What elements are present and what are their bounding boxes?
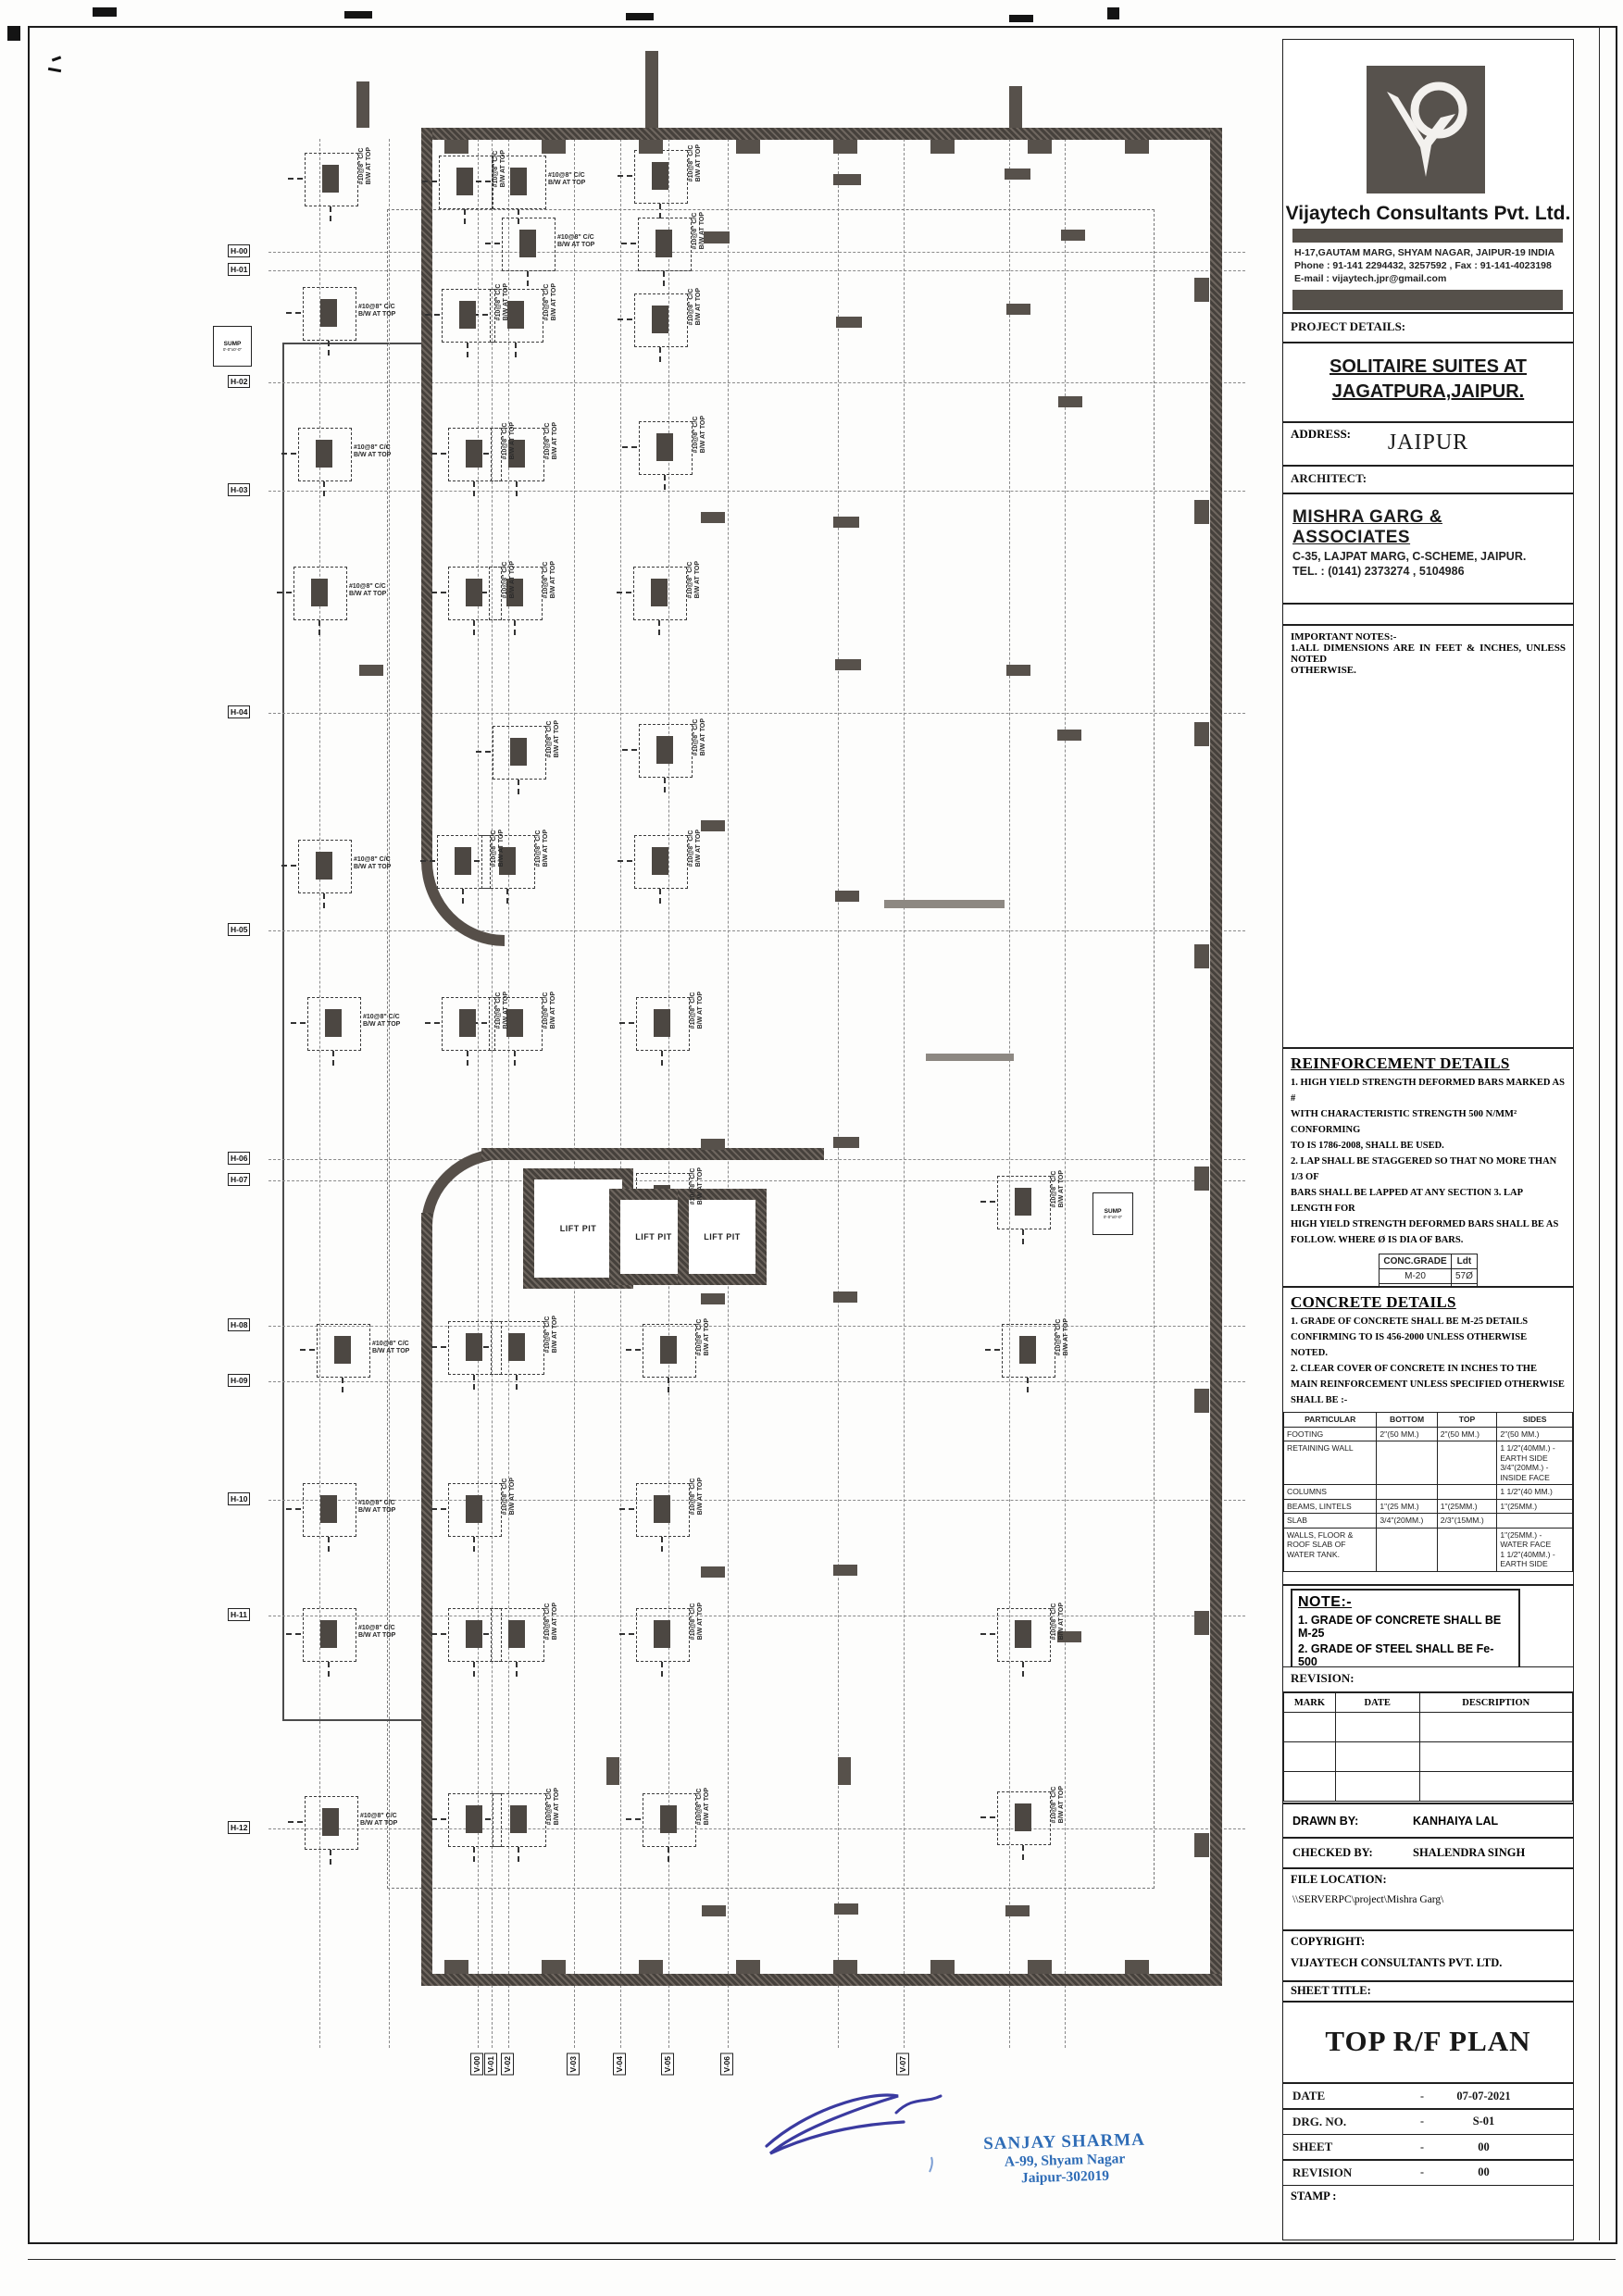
column (510, 168, 527, 195)
rebar-note: #10@8" C/CB/W AT TOP (495, 283, 510, 320)
concrete-box: CONCRETE DETAILS 1. GRADE OF CONCRETE SH… (1282, 1287, 1574, 1585)
grid-line-h (268, 930, 1245, 931)
grid-label-h-00: H-00 (228, 244, 250, 257)
note-heading: NOTE:- (1298, 1594, 1513, 1611)
rebar-tick (514, 620, 516, 635)
wall-stub (838, 1757, 851, 1785)
wall-stub (606, 1757, 619, 1785)
wall-stub (359, 665, 383, 676)
rebar-tick (431, 592, 446, 593)
rebar-tick (663, 271, 665, 286)
grid-label-v-07: V-07 (896, 2053, 909, 2076)
wall-stub (1006, 304, 1030, 315)
rebar-tick (619, 1633, 634, 1635)
rebar-tick (516, 1375, 518, 1390)
rebar-tick (467, 343, 468, 357)
grid-line-v (574, 139, 575, 2048)
grid-label-h-09: H-09 (228, 1374, 250, 1387)
rebar-note: #10@8" C/CB/W AT TOP (690, 1478, 705, 1515)
copyright-label: COPYRIGHT: (1291, 1935, 1573, 1949)
rebar-tick (420, 860, 435, 862)
column (459, 301, 476, 329)
address-box: ADDRESS: JAIPUR (1282, 422, 1574, 466)
column (466, 579, 482, 606)
rebar-tick (518, 780, 519, 794)
copyright-box: COPYRIGHT: VIJAYTECH CONSULTANTS PVT. LT… (1282, 1930, 1574, 1981)
grid-label-h-03: H-03 (228, 483, 250, 496)
rebar-tick (342, 1378, 343, 1392)
meta-row-drgno: DRG. NO.-S-01 (1282, 2109, 1574, 2135)
stamp-text: SANJAY SHARMA A-99, Shyam Nagar Jaipur-3… (939, 2128, 1190, 2189)
grid-line-h (268, 1500, 1245, 1501)
grid-line-v (478, 139, 479, 2048)
wall-stub (835, 891, 859, 902)
grid-line-h (268, 382, 1245, 383)
grid-line-v (620, 139, 621, 2048)
wall-right (1210, 128, 1222, 1986)
wall-stub (834, 1903, 858, 1915)
company-footer-bar (1292, 290, 1563, 310)
wall-stub (701, 1566, 725, 1578)
rebar-note: #10@8" C/CB/W AT TOP (688, 288, 703, 325)
wall-stub (833, 517, 859, 528)
rebar-tick (476, 751, 491, 753)
grid-line-h (268, 270, 1245, 271)
company-logo (1367, 66, 1485, 193)
rebar-tick (617, 592, 631, 593)
rebar-tick (328, 341, 330, 356)
rebar-note: #10@8" C/CB/W AT TOP (372, 1341, 409, 1355)
sheet-title-value: TOP R/F PLAN (1283, 2025, 1573, 2058)
rebar-note: #10@8" C/CB/W AT TOP (543, 283, 558, 320)
column (466, 1333, 482, 1361)
rebar-note: #10@8" C/CB/W AT TOP (693, 416, 707, 453)
rebar-tick (506, 889, 508, 904)
grid-line-v (319, 139, 320, 2048)
rebar-tick (527, 271, 529, 286)
rebar-note: #10@8" C/CB/W AT TOP (690, 1167, 705, 1204)
rebar-note: #10@8" C/CB/W AT TOP (696, 1318, 711, 1355)
rebar-note: #10@8" C/CB/W AT TOP (535, 830, 550, 867)
rebar-tick (431, 1633, 446, 1635)
column (654, 1620, 670, 1648)
drawing-sheet: H-00H-01H-02H-03H-04H-05H-06H-07H-08H-09… (0, 0, 1623, 2296)
meta-row-sheet: SHEET-00 (1282, 2134, 1574, 2160)
rebar-note: #10@8" C/CB/W AT TOP (546, 1788, 561, 1825)
column (519, 230, 536, 257)
column (1015, 1803, 1031, 1831)
column (311, 579, 328, 606)
rebar-tick (668, 1378, 669, 1392)
pilaster (1194, 278, 1209, 302)
rebar-note: #10@8" C/CB/W AT TOP (358, 147, 373, 184)
grid-line-v (389, 139, 390, 2048)
grid-label-h-04: H-04 (228, 705, 250, 718)
wall-stub (1009, 86, 1022, 128)
rebar-note: #10@8" C/CB/W AT TOP (502, 561, 517, 598)
grid-line-v (904, 139, 905, 2048)
grid-label-v-05: V-05 (661, 2053, 674, 2076)
pilaster (542, 1960, 566, 1974)
rebar-note: #10@8" C/CB/W AT TOP (692, 212, 706, 249)
wall-stub (645, 51, 658, 128)
wall-stub (1005, 168, 1030, 180)
rebar-tick (618, 318, 632, 320)
column (1015, 1188, 1031, 1216)
column (652, 847, 668, 875)
reinforcement-heading: REINFORCEMENT DETAILS (1291, 1054, 1566, 1073)
column (320, 1620, 337, 1648)
rebar-tick (431, 1818, 446, 1820)
rebar-tick (467, 1051, 468, 1066)
column (456, 168, 473, 195)
grid-line-h (268, 491, 1245, 492)
wall-stub (1005, 1905, 1030, 1916)
column (320, 299, 337, 327)
grid-label-h-02: H-02 (228, 375, 250, 388)
grid-label-h-06: H-06 (228, 1152, 250, 1165)
rebar-tick (318, 620, 320, 635)
grid-label-v-04: V-04 (613, 2053, 626, 2076)
architect-address: C-35, LAJPAT MARG, C-SCHEME, JAIPUR. (1292, 550, 1564, 563)
pilaster (1028, 140, 1052, 154)
cover-table: PARTICULARBOTTOMTOPSIDESFOOTING2"(50 MM.… (1283, 1412, 1573, 1572)
project-name-line2: JAGATPURA,JAIPUR. (1283, 380, 1573, 405)
sump: SUMP0'-0"x0'-0" (1092, 1192, 1133, 1235)
rebar-tick (622, 749, 637, 751)
wall-left-lower (421, 1213, 432, 1986)
column (652, 306, 668, 333)
rebar-tick (431, 1508, 446, 1510)
column (322, 1808, 339, 1836)
signature (750, 2085, 944, 2177)
rebar-tick (328, 1662, 330, 1677)
grid-line-h (268, 1180, 1245, 1181)
project-details-header: PROJECT DETAILS: (1282, 313, 1574, 343)
rebar-note: #10@8" C/CB/W AT TOP (1055, 1318, 1070, 1355)
rebar-tick (1022, 1662, 1024, 1677)
column (510, 1805, 527, 1833)
copyright-value: VIJAYTECH CONSULTANTS PVT. LTD. (1291, 1956, 1573, 1970)
rebar-note: #10@8" C/CB/W AT TOP (544, 1603, 559, 1640)
architect-name: MISHRA GARG & ASSOCIATES (1292, 507, 1564, 548)
sheet-title-header: SHEET TITLE: (1282, 1981, 1574, 2002)
rebar-note: #10@8" C/CB/W AT TOP (358, 1625, 395, 1640)
rebar-tick (332, 1051, 334, 1066)
rebar-tick (1027, 1378, 1029, 1392)
company-name: Vijaytech Consultants Pvt. Ltd. (1283, 203, 1573, 225)
column (508, 1620, 525, 1648)
rebar-tick (330, 1850, 331, 1865)
rebar-tick (476, 181, 491, 182)
column (455, 847, 471, 875)
drawn-by-row: DRAWN BY: KANHAIYA LAL (1282, 1803, 1574, 1838)
rebar-tick (431, 453, 446, 455)
grid-label-h-12: H-12 (228, 1821, 250, 1834)
wall-stub (1057, 730, 1081, 741)
wall-stub (835, 659, 861, 670)
rebar-tick (323, 893, 325, 908)
rebar-note: #10@8" C/CB/W AT TOP (502, 1478, 517, 1515)
wall-stub (833, 1137, 859, 1148)
column (466, 440, 482, 468)
rebar-tick (425, 314, 440, 316)
column (325, 1009, 342, 1037)
stamp-box: STAMP : (1282, 2185, 1574, 2240)
pilaster (736, 140, 760, 154)
pilaster (444, 140, 468, 154)
rebar-tick (473, 1847, 475, 1862)
wall-stub (833, 174, 861, 185)
rebar-tick (515, 343, 517, 357)
important-notes-heading: IMPORTANT NOTES:- (1291, 631, 1566, 643)
rebar-note: #10@8" C/CB/W AT TOP (696, 1788, 711, 1825)
revision-table: MARKDATEDESCRIPTION (1283, 1692, 1573, 1802)
column (510, 738, 527, 766)
wall-stub (701, 1139, 725, 1150)
sheet-title-box: TOP R/F PLAN (1282, 2002, 1574, 2083)
architect-label: ARCHITECT: (1283, 467, 1573, 486)
pilaster (1194, 722, 1209, 746)
pilaster (930, 140, 955, 154)
pilaster (1194, 1167, 1209, 1191)
column (466, 1805, 482, 1833)
rebar-tick (664, 778, 666, 792)
wall-stub (1058, 396, 1082, 407)
project-details-label: PROJECT DETAILS: (1283, 314, 1573, 334)
pilaster (1194, 500, 1209, 524)
pilaster (1194, 944, 1209, 968)
rebar-note: #10@8" C/CB/W AT TOP (693, 718, 707, 755)
drawn-by-label: DRAWN BY: (1283, 1815, 1413, 1828)
rebar-tick (985, 1349, 1000, 1351)
pilaster (1028, 1960, 1052, 1974)
column (322, 165, 339, 193)
architect-header: ARCHITECT: (1282, 466, 1574, 493)
stamp-label: STAMP : (1291, 2190, 1573, 2203)
rebar-tick (288, 178, 303, 180)
rebar-note: #10@8" C/CB/W AT TOP (544, 1316, 559, 1353)
column (1019, 1336, 1036, 1364)
grid-line-h (268, 713, 1245, 714)
rebar-tick (1022, 1229, 1024, 1244)
checked-by-label: CHECKED BY: (1283, 1846, 1413, 1860)
company-box: Vijaytech Consultants Pvt. Ltd. H-17,GAU… (1282, 39, 1574, 313)
wall-liftpit-top (481, 1148, 824, 1160)
rebar-note: #10@8" C/CB/W AT TOP (543, 992, 557, 1029)
rebar-tick (661, 1537, 663, 1552)
rebar-note: #10@8" C/CB/W AT TOP (349, 583, 386, 598)
wall-stub (701, 512, 725, 523)
rebar-note: #10@8" C/CB/W AT TOP (688, 830, 703, 867)
grid-label-h-07: H-07 (228, 1173, 250, 1186)
rebar-tick (330, 206, 331, 221)
rebar-note: #10@8" C/CB/W AT TOP (495, 992, 510, 1029)
wall-stub (704, 231, 730, 243)
project-name-box: SOLITAIRE SUITES AT JAGATPURA,JAIPUR. (1282, 343, 1574, 422)
rebar-note: #10@8" C/CB/W AT TOP (354, 856, 391, 871)
rebar-tick (281, 453, 296, 455)
grid-label-h-05: H-05 (228, 923, 250, 936)
grid-line-h (268, 1326, 1245, 1327)
company-banner-bar (1292, 229, 1563, 243)
rebar-tick (518, 1847, 519, 1862)
reinforcement-notes: 1. HIGH YIELD STRENGTH DEFORMED BARS MAR… (1283, 1075, 1573, 1248)
rebar-tick (286, 1508, 301, 1510)
grid-label-h-01: H-01 (228, 263, 250, 276)
rebar-note: #10@8" C/CB/W AT TOP (548, 172, 585, 187)
column (334, 1336, 351, 1364)
pilaster (1125, 1960, 1149, 1974)
grid-label-h-11: H-11 (228, 1608, 250, 1621)
wall-stub (701, 820, 725, 831)
grid-label-v-01: V-01 (484, 2053, 497, 2076)
rebar-note: #10@8" C/CB/W AT TOP (493, 150, 507, 187)
grid-label-v-02: V-02 (501, 2053, 514, 2076)
concrete-heading: CONCRETE DETAILS (1291, 1293, 1566, 1312)
grid-line-v (492, 139, 493, 2048)
grid-line-v (1065, 139, 1066, 2048)
reinforcement-box: REINFORCEMENT DETAILS 1. HIGH YIELD STRE… (1282, 1048, 1574, 1287)
rebar-tick (300, 1349, 315, 1351)
address-value: JAIPUR (1283, 430, 1573, 455)
rebar-note: #10@8" C/CB/W AT TOP (544, 422, 559, 459)
grid-label-v-00: V-00 (470, 2053, 483, 2076)
rebar-tick (516, 481, 518, 496)
column (655, 230, 672, 257)
pilaster (833, 140, 857, 154)
grid-line-h (268, 252, 1245, 253)
column (508, 1333, 525, 1361)
column (466, 1495, 482, 1523)
rebar-tick (1022, 1845, 1024, 1860)
rebar-note: #10@8" C/CB/W AT TOP (546, 720, 561, 757)
rebar-tick (659, 889, 661, 904)
grid-label-h-10: H-10 (228, 1492, 250, 1505)
rebar-note: #10@8" C/CB/W AT TOP (1051, 1170, 1066, 1207)
rebar-tick (516, 1662, 518, 1677)
grid-line-h (268, 1381, 1245, 1382)
column (320, 1495, 337, 1523)
rebar-note: #10@8" C/CB/W AT TOP (502, 422, 517, 459)
column (656, 736, 673, 764)
rebar-tick (323, 481, 325, 496)
rebar-note: #10@8" C/CB/W AT TOP (1051, 1786, 1066, 1823)
wall-left-upper (421, 128, 432, 864)
company-phone: Phone : 91-141 2294432, 3257592 , Fax : … (1294, 260, 1552, 271)
column (316, 852, 332, 880)
project-name-line1: SOLITAIRE SUITES AT (1283, 355, 1573, 380)
rebar-tick (288, 1821, 303, 1823)
rebar-tick (473, 1375, 475, 1390)
rebar-note: #10@8" C/CB/W AT TOP (688, 144, 703, 181)
company-email: E-mail : vijaytech.jpr@gmail.com (1294, 273, 1446, 284)
revision-header: REVISION: (1282, 1666, 1574, 1691)
sump: SUMP0'-0"x0'-0" (213, 326, 252, 367)
rebar-tick (277, 592, 292, 593)
wall-stub (701, 1293, 725, 1304)
rebar-tick (661, 1051, 663, 1066)
rebar-note: #10@8" C/CB/W AT TOP (358, 1500, 395, 1515)
grid-label-v-06: V-06 (720, 2053, 733, 2076)
wall-stub (1061, 230, 1085, 241)
column (660, 1805, 677, 1833)
drawn-by-value: KANHAIYA LAL (1413, 1815, 1498, 1828)
rebar-tick (621, 243, 636, 244)
rebar-tick (473, 620, 475, 635)
grid-line-h (268, 1616, 1245, 1616)
rebar-note: #10@8" C/CB/W AT TOP (1051, 1603, 1066, 1640)
important-notes-line2: OTHERWISE. (1291, 665, 1566, 676)
file-location-path: \\SERVERPC\project\Mishra Garg\ (1292, 1894, 1573, 1905)
note-line1: 1. GRADE OF CONCRETE SHALL BE M-25 (1298, 1614, 1513, 1640)
rebar-tick (291, 1022, 306, 1024)
column (656, 433, 673, 461)
grid-line-v (728, 139, 729, 2048)
pilaster (1125, 140, 1149, 154)
wall-stub (926, 1054, 1014, 1061)
column (654, 1495, 670, 1523)
rebar-tick (618, 175, 632, 177)
pilaster (833, 1960, 857, 1974)
column (466, 1620, 482, 1648)
sheet-title-label: SHEET TITLE: (1291, 1984, 1573, 1998)
wall-bottom (421, 1974, 1222, 1986)
note-line2: 2. GRADE OF STEEL SHALL BE Fe-500 (1298, 1642, 1513, 1668)
rebar-tick (980, 1633, 995, 1635)
rebar-tick (473, 1537, 475, 1552)
wall-stub (836, 317, 862, 328)
column (660, 1336, 677, 1364)
note-box: NOTE:- 1. GRADE OF CONCRETE SHALL BE M-2… (1291, 1589, 1520, 1678)
checked-by-value: SHALENDRA SINGH (1413, 1846, 1525, 1860)
important-notes-box: IMPORTANT NOTES:- 1.ALL DIMENSIONS ARE I… (1282, 625, 1574, 1048)
important-notes-line1: 1.ALL DIMENSIONS ARE IN FEET & INCHES, U… (1291, 643, 1566, 665)
rebar-note: #10@8" C/CB/W AT TOP (358, 304, 395, 318)
column (652, 162, 668, 190)
rebar-tick (619, 1022, 634, 1024)
pilaster (1194, 1389, 1209, 1413)
rebar-tick (464, 209, 466, 224)
column (316, 440, 332, 468)
concrete-notes: 1. GRADE OF CONCRETE SHALL BE M-25 DETAI… (1283, 1314, 1573, 1408)
rebar-tick (626, 1818, 641, 1820)
company-address: H-17,GAUTAM MARG, SHYAM NAGAR, JAIPUR-19… (1294, 247, 1554, 258)
grid-line-h (268, 1828, 1245, 1829)
rebar-note: #10@8" C/CB/W AT TOP (360, 1813, 397, 1828)
wall-stub (833, 1291, 857, 1303)
rebar-tick (286, 1633, 301, 1635)
grid-label-h-08: H-08 (228, 1318, 250, 1331)
rebar-tick (422, 181, 437, 182)
rebar-note: #10@8" C/CB/W AT TOP (354, 444, 391, 459)
rebar-tick (658, 620, 660, 635)
rebar-note: #10@8" C/CB/W AT TOP (687, 561, 702, 598)
meta-row-revision: REVISION-00 (1282, 2160, 1574, 2186)
meta-row-date: DATE-07-07-2021 (1282, 2083, 1574, 2109)
column (651, 579, 668, 606)
pilaster (930, 1960, 955, 1974)
pilaster (639, 1960, 663, 1974)
pilaster (639, 140, 663, 154)
architect-tel: TEL. : (0141) 2373274 , 5104986 (1292, 565, 1564, 578)
column (459, 1009, 476, 1037)
rebar-tick (286, 312, 301, 314)
rebar-tick (485, 243, 500, 244)
rebar-tick (281, 865, 296, 867)
rebar-tick (328, 1537, 330, 1552)
wall-stub (884, 900, 1005, 908)
